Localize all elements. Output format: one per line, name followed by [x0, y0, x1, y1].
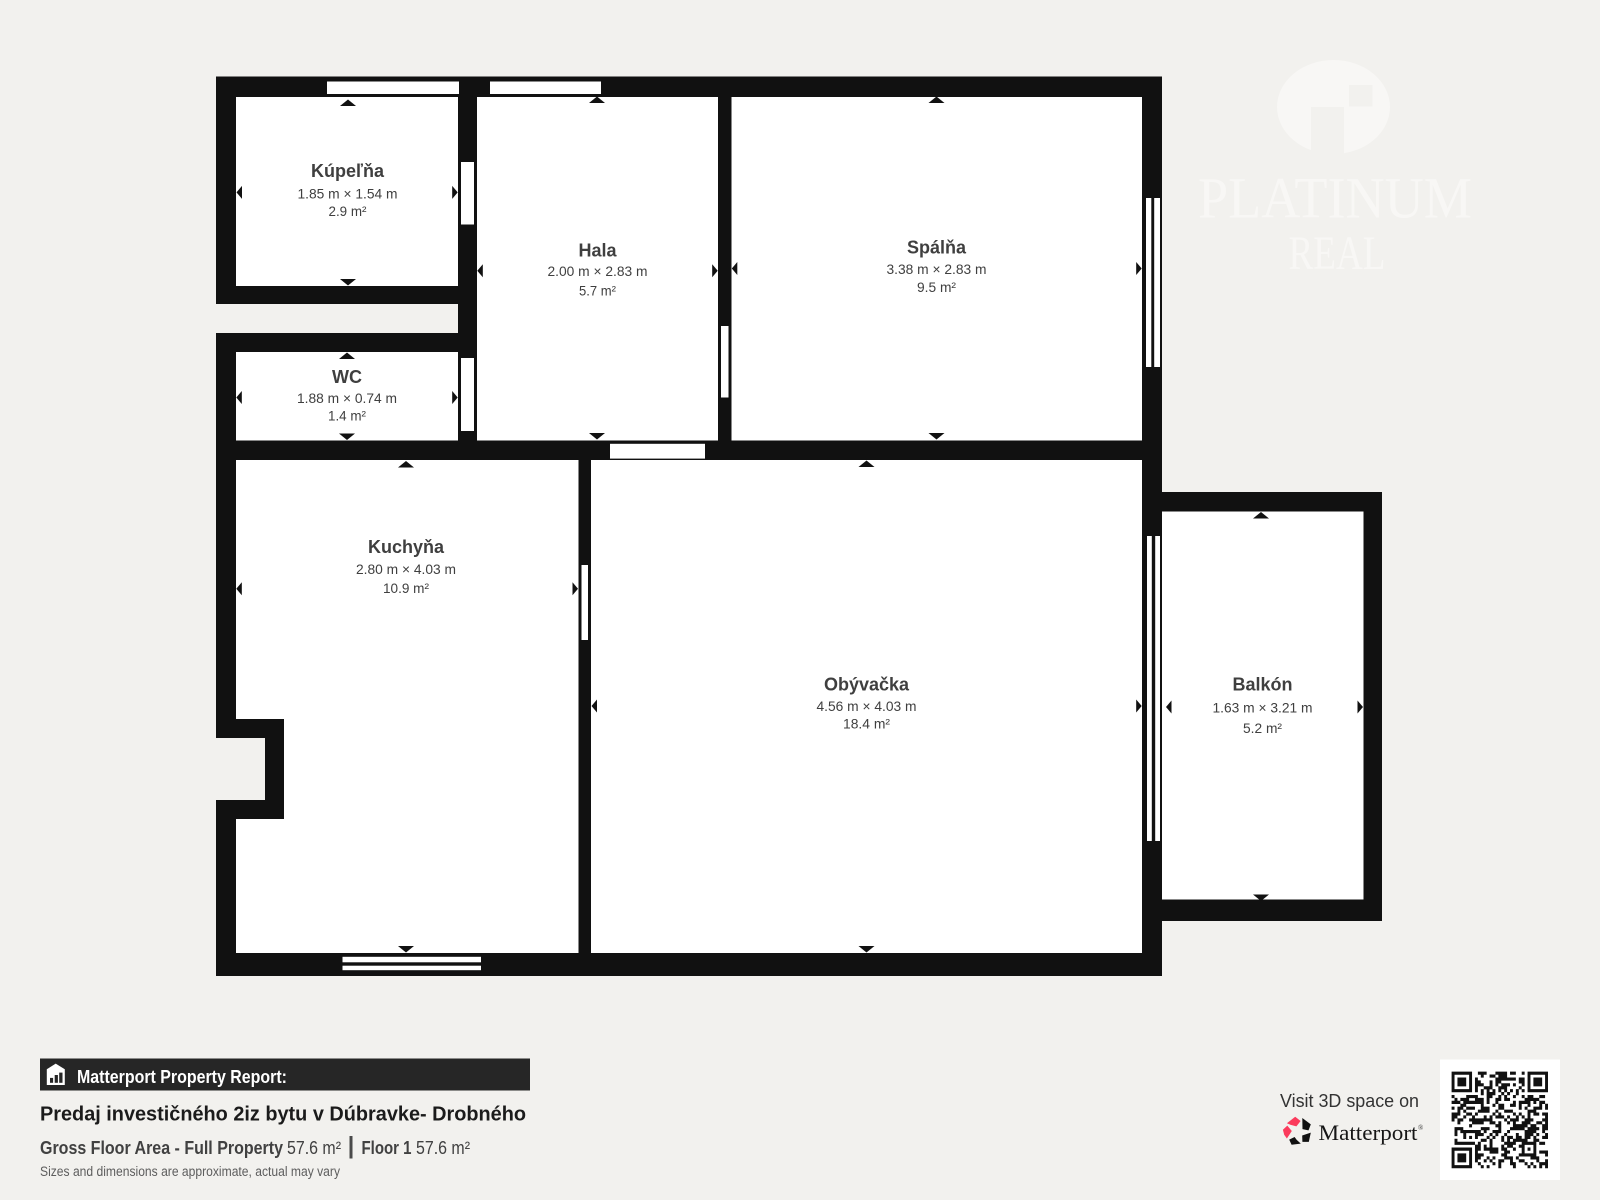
svg-text:Visit 3D space on: Visit 3D space on: [1280, 1091, 1419, 1111]
svg-text:Floor 1: Floor 1: [362, 1138, 412, 1158]
svg-text:2.9 m²: 2.9 m²: [329, 203, 367, 219]
svg-text:Hala: Hala: [578, 241, 617, 261]
svg-text:2.00 m × 2.83 m: 2.00 m × 2.83 m: [548, 263, 648, 279]
svg-text:Matterport: Matterport: [1319, 1120, 1418, 1145]
svg-text:10.9 m²: 10.9 m²: [383, 580, 429, 596]
svg-text:Predaj investičného 2iz bytu v: Predaj investičného 2iz bytu v Dúbravke-…: [40, 1103, 526, 1126]
svg-text:1.4 m²: 1.4 m²: [328, 408, 366, 424]
svg-text:WC: WC: [332, 367, 362, 387]
svg-text:4.56 m × 4.03 m: 4.56 m × 4.03 m: [817, 698, 917, 714]
svg-text:18.4 m²: 18.4 m²: [843, 716, 890, 732]
svg-text:1.85 m × 1.54 m: 1.85 m × 1.54 m: [298, 186, 398, 202]
svg-text:1.88 m × 0.74 m: 1.88 m × 0.74 m: [297, 390, 397, 406]
svg-text:1.63 m × 3.21 m: 1.63 m × 3.21 m: [1213, 700, 1313, 716]
svg-text:5.2 m²: 5.2 m²: [1243, 720, 1282, 736]
svg-text:2.80 m × 4.03 m: 2.80 m × 4.03 m: [356, 561, 456, 577]
svg-text:Balkón: Balkón: [1232, 675, 1292, 695]
svg-text:®: ®: [1418, 1124, 1424, 1132]
svg-text:Matterport Property Report:: Matterport Property Report:: [77, 1066, 287, 1087]
svg-text:57.6 m²: 57.6 m²: [416, 1138, 470, 1158]
svg-text:3.38 m × 2.83 m: 3.38 m × 2.83 m: [887, 261, 987, 277]
svg-text:REAL: REAL: [1289, 227, 1386, 280]
svg-text:Gross Floor Area - Full Proper: Gross Floor Area - Full Property: [40, 1138, 283, 1158]
svg-text:Obývačka: Obývačka: [824, 675, 910, 695]
svg-text:Kuchyňa: Kuchyňa: [368, 537, 445, 557]
svg-text:Spálňa: Spálňa: [907, 238, 967, 258]
svg-text:57.6 m²: 57.6 m²: [287, 1138, 341, 1158]
svg-text:PLATINUM: PLATINUM: [1198, 166, 1472, 231]
svg-text:Sizes and dimensions are appro: Sizes and dimensions are approximate, ac…: [40, 1164, 340, 1179]
svg-text:Kúpeľňa: Kúpeľňa: [311, 161, 385, 181]
svg-text:9.5 m²: 9.5 m²: [917, 279, 956, 295]
svg-text:5.7 m²: 5.7 m²: [579, 283, 616, 299]
